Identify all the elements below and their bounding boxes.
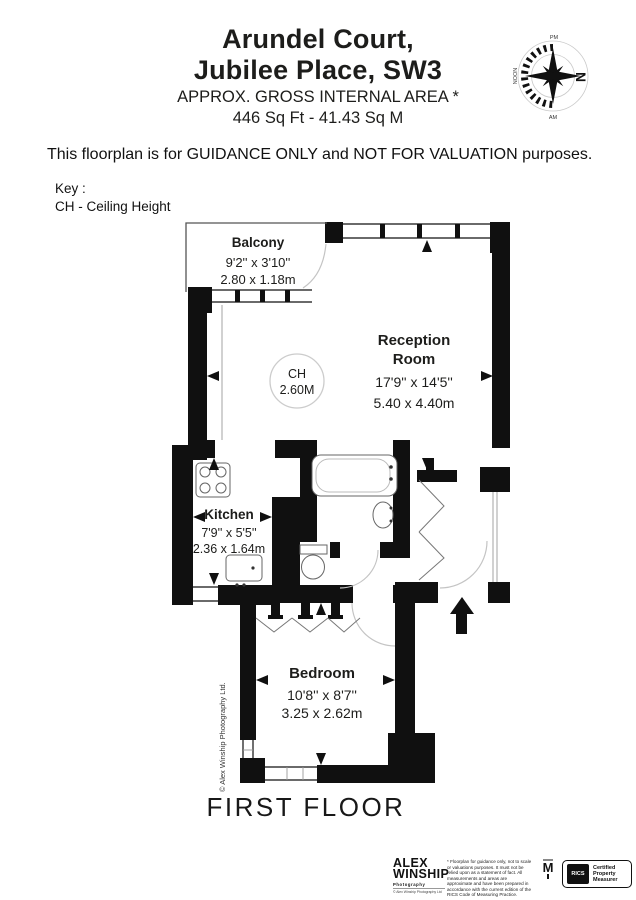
compass-pm-label: PM (550, 35, 559, 41)
bedroom-imperial: 10'8'' x 8'7'' (287, 687, 357, 703)
wall-right (492, 222, 510, 448)
balcony-label: Balcony (232, 235, 285, 250)
wall-kitchen-top-left (193, 440, 215, 458)
reception-label-1: Reception (378, 332, 451, 349)
wardrobe-foot-3 (328, 615, 343, 619)
wall-kitchen-top-right (275, 440, 300, 458)
toilet-icon (302, 555, 325, 579)
basin-icon (373, 502, 393, 528)
bathtub-inner (316, 459, 390, 492)
mullion (235, 290, 240, 302)
wall-bedroom-bl-corner (240, 758, 265, 783)
kitchen-metric: 2.36 x 1.64m (193, 542, 265, 556)
wardrobe-partition-1 (271, 603, 280, 617)
arrow-bedroom-up (316, 603, 326, 615)
reception-imperial: 17'9'' x 14'5'' (375, 374, 453, 390)
mullion (380, 224, 385, 238)
mullion (455, 224, 460, 238)
rics-logo: RICS (567, 864, 589, 884)
mullion (417, 224, 422, 238)
arrow-reception-left (207, 371, 219, 381)
logo-line4: © Alex Winship Photography Ltd (393, 890, 445, 894)
hob-burner (200, 483, 210, 493)
bedroom-metric: 3.25 x 2.62m (282, 705, 363, 721)
rics-badge-text: Certified Property Measurer (593, 865, 627, 884)
logo-line2: WINSHIP (393, 869, 445, 880)
arrow-reception-up (422, 240, 432, 252)
wardrobe-partition-2 (301, 603, 310, 617)
arrow-bedroom-left (256, 675, 268, 685)
wardrobe-foot-2 (298, 615, 313, 619)
tap-dot (235, 583, 238, 586)
mullion (260, 290, 265, 302)
bath-tap-dot (389, 477, 393, 481)
ceiling-height-value: 2.60M (280, 383, 315, 397)
tap-dot (242, 583, 245, 586)
logo-line3: Photography (393, 882, 445, 889)
wall-bedroom-right (395, 585, 415, 735)
reception-label-2: Room (393, 351, 436, 368)
wall-bathroom-bottom-right (380, 542, 410, 558)
bath-tap-dot (389, 465, 393, 469)
arrow-reception-right (481, 371, 493, 381)
bedroom-door-arc (352, 603, 395, 646)
wall-right-bottom-corner (488, 582, 510, 603)
toilet-cistern (300, 545, 327, 554)
alex-winship-logo: ALEX WINSHIP Photography © Alex Winship … (393, 858, 445, 894)
balcony-door-arc (303, 244, 326, 288)
vertical-copyright: © Alex Winship Photography Ltd. (218, 682, 227, 792)
compass-icon: N PM NOON AM (513, 35, 589, 121)
ceiling-height-label: CH (288, 367, 306, 381)
hob-burner (216, 483, 226, 493)
entrance-arrow-shaft (456, 614, 467, 634)
wardrobe-foot-1 (268, 615, 283, 619)
kitchen-imperial: 7'9'' x 5'5'' (201, 526, 256, 540)
bedroom-label: Bedroom (289, 665, 355, 682)
reception-metric: 5.40 x 4.40m (374, 395, 455, 411)
wall-bathroom-bottom-stub (330, 542, 340, 558)
sink-drain-dot (251, 566, 254, 569)
floorplan-svg: N PM NOON AM (0, 0, 636, 900)
wall-right-stub (480, 467, 510, 492)
wall-bedroom-br-corner (388, 733, 435, 783)
wall-bedroom-left (240, 603, 256, 740)
entrance-door-arc (440, 541, 487, 588)
footer-small-print: * Floorplan for guidance only, not to sc… (447, 859, 533, 898)
rics-badge: RICS Certified Property Measurer (562, 860, 632, 888)
kitchen-label: Kitchen (204, 507, 254, 522)
basin-tap-dot (390, 520, 393, 523)
balcony-metric: 2.80 x 1.18m (220, 272, 295, 287)
entrance-arrow-icon (450, 597, 474, 634)
compass-north-label: N (573, 72, 589, 82)
basin-tap-dot (390, 507, 393, 510)
wall-kitchen-left (172, 445, 193, 605)
wall-balcony-corner (188, 287, 212, 313)
wall-bedroom-top (240, 585, 353, 603)
arrow-kitchen-down (209, 573, 219, 585)
arrow-bedroom-right (383, 675, 395, 685)
wall-bedroom-bottom (317, 765, 392, 783)
bedroom-wardrobe-doors (256, 618, 360, 632)
hall-closet-bifold-doors (419, 480, 444, 580)
ceiling-height-circle (270, 354, 324, 408)
compass-noon-label: NOON (513, 68, 519, 85)
kitchen-sink-icon (226, 555, 262, 581)
floor-label: FIRST FLOOR (175, 792, 437, 823)
wardrobe-partition-3 (331, 603, 340, 617)
arrow-kitchen-right (260, 512, 272, 522)
compass-am-label: AM (549, 115, 558, 121)
balcony-imperial: 9'2'' x 3'10'' (226, 255, 291, 270)
measurer-mark-m: M (540, 862, 556, 874)
wall-closet-top-bar (417, 470, 457, 482)
arrow-bedroom-down (316, 753, 326, 765)
hob-burner (200, 467, 210, 477)
measurer-mark-logo: M (540, 859, 556, 879)
arrow-kitchen-left (193, 512, 205, 522)
mullion (285, 290, 290, 302)
wall-balcony-door-stub (325, 222, 343, 243)
entrance-arrow-head (450, 597, 474, 614)
bathroom-door-arc (340, 550, 378, 588)
